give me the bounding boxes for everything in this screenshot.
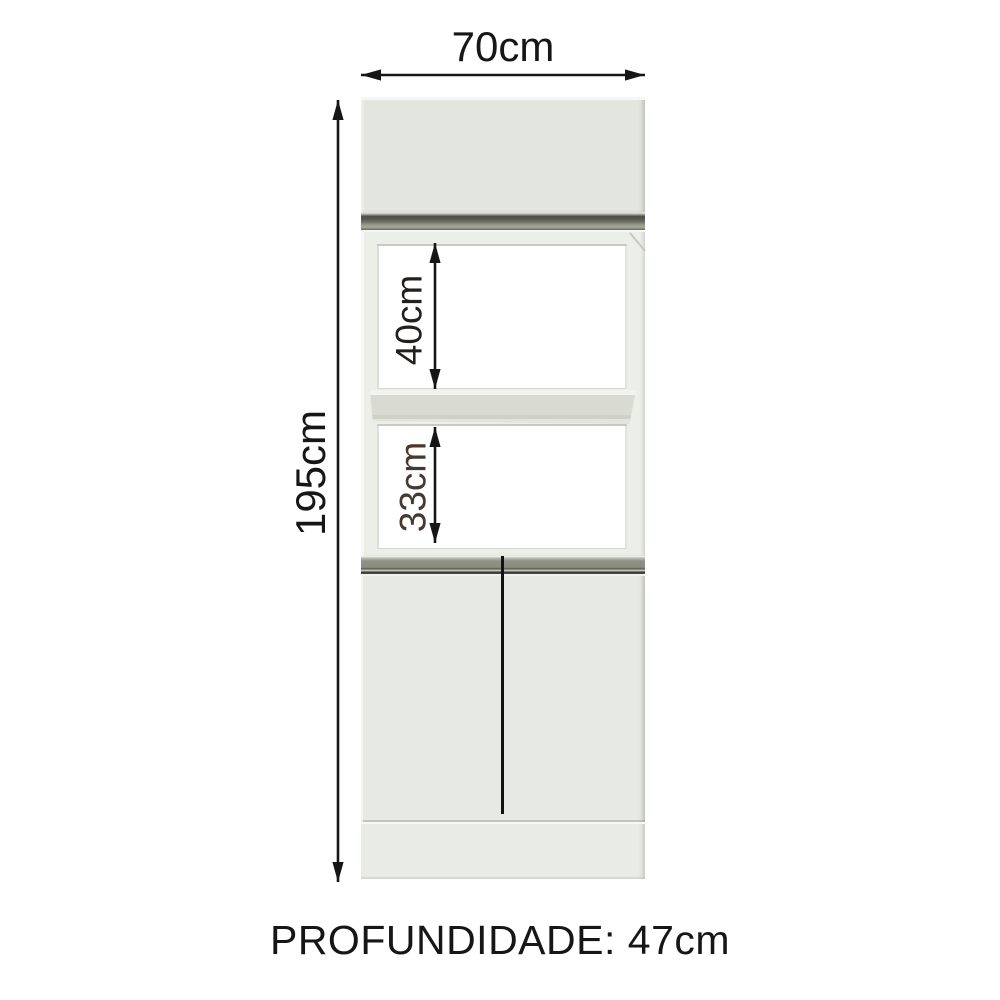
door-divider-line bbox=[501, 556, 504, 814]
upper-aluminum-profile bbox=[361, 212, 645, 230]
diagram-canvas: 70cm 195cm 40cm 33cm PROFUNDIDADE: 47cm bbox=[0, 0, 1000, 1000]
upper-niche-dimension-label: 40cm bbox=[391, 275, 428, 365]
base-plinth bbox=[361, 822, 645, 879]
cabinet-upper-door bbox=[361, 97, 645, 212]
width-dimension-label: 70cm bbox=[361, 26, 645, 68]
height-dimension-label: 195cm bbox=[290, 410, 332, 536]
middle-shelf-face bbox=[370, 389, 636, 424]
middle-shelf bbox=[370, 389, 636, 424]
lower-niche-dimension-label: 33cm bbox=[395, 442, 432, 532]
depth-dimension-label: PROFUNDIDADE: 47cm bbox=[0, 920, 1000, 961]
